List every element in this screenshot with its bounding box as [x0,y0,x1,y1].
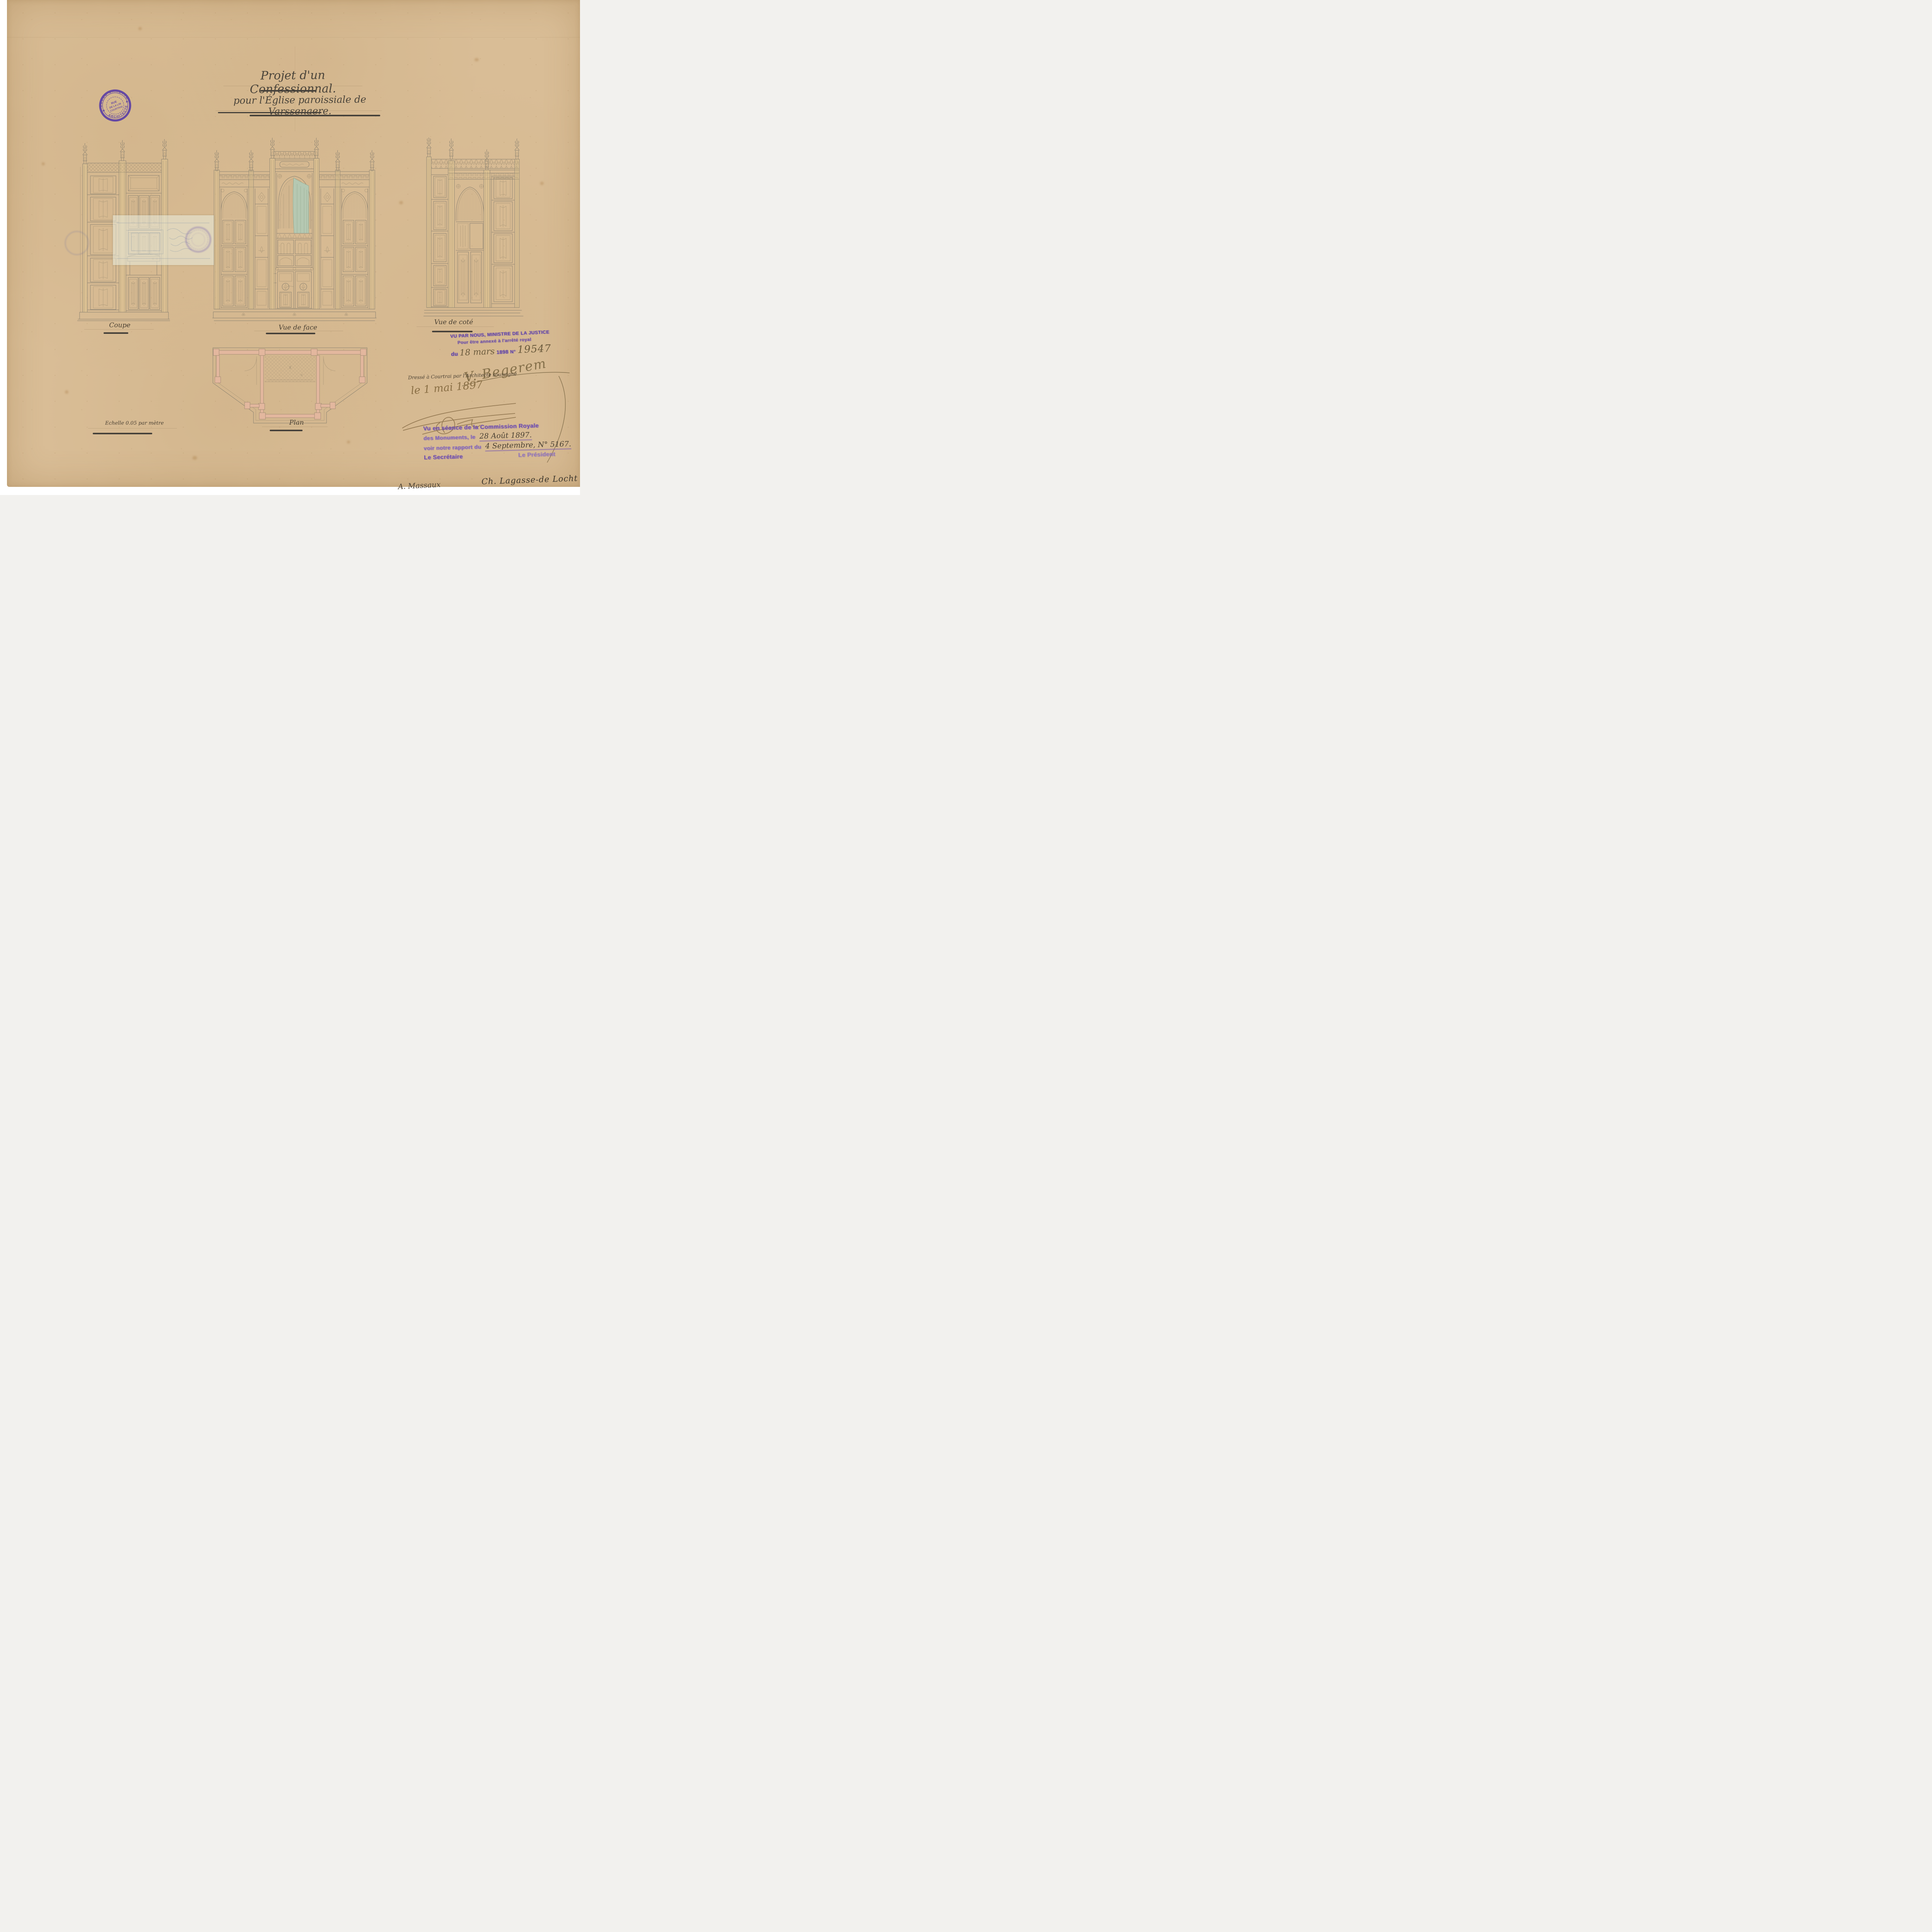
fox-spot [540,182,544,185]
scanned-drawing-page: JULES CARETTE ARCHITECTE RUE DE LA LOI C… [0,0,580,495]
title-line2: pour l'Église paroissiale de Varssenaere… [211,94,389,117]
justice-du-label: du [451,350,458,357]
title-underline-lower [250,115,380,116]
commission-stamp: Vu en séance de la Commission Royale des… [423,422,571,461]
paper-sheet: JULES CARETTE ARCHITECTE RUE DE LA LOI C… [7,0,580,487]
commission-line2-handwritten: 28 Août 1897. [479,431,532,442]
fox-spot [347,440,350,444]
label-vue-de-cote: Vue de coté [423,318,485,326]
justice-stamp: VU PAR NOUS, MINISTRE DE LA JUSTICE Pour… [450,328,579,359]
blue-ghost-stamp-icon [65,231,89,255]
pencil-guide-line [84,329,154,330]
commission-line3-label: voir notre rapport du [423,444,481,451]
title-line1: Projet d'un Confessionnal. [223,68,364,96]
commission-line3: voir notre rapport du 4 Septembre, N° 51… [423,440,570,452]
fox-spot [399,201,403,204]
architect-ghost-stamp-icon [182,223,214,255]
pencil-guide-line [88,428,177,429]
scale-underline [93,433,152,434]
label-plan-underline [270,430,303,431]
secretary-signature: A. Massaux [398,480,441,491]
side-elevation-drawing [423,138,524,319]
plan-drawing [210,343,370,426]
label-coupe: Coupe [102,321,137,329]
fold-crease [7,37,580,37]
president-signature: Ch. Lagasse-de Locht [481,474,578,486]
fox-spot [138,27,142,30]
fox-spot [65,390,68,394]
president-label: Le Président [518,451,555,459]
pencil-guide-line [262,427,328,427]
scale-note: Echelle 0.05 par mètre [96,420,173,426]
fox-spot [474,58,479,61]
fox-spot [192,456,197,460]
label-vue-de-cote-underline [432,331,473,332]
front-elevation-drawing [212,136,377,325]
label-vue-de-face-underline [266,333,315,334]
commission-line3-handwritten: 4 Septembre, N° 5167. [485,440,571,452]
justice-number-handwritten: 19547 [517,343,551,356]
secretary-label: Le Secrétaire [424,453,463,461]
justice-year: 1898 [496,349,509,355]
label-coupe-underline [104,332,128,334]
tracing-paper-patch [113,215,214,265]
curtain-wash [293,178,309,233]
lattice-grille [470,223,483,249]
justice-date-handwritten: 18 mars [459,347,495,358]
fox-spot [42,162,45,165]
pencil-guide-line [417,327,494,327]
label-plan: Plan [278,419,315,427]
title-underline-upper [218,112,321,113]
label-vue-de-face: Vue de face [265,324,331,332]
commission-line2-label: des Monuments, le [423,434,476,441]
title-underline [260,90,316,92]
justice-number-label: N° [510,349,516,355]
architect-round-stamp-icon: JULES CARETTE ARCHITECTE RUE DE LA LOI C… [94,84,136,127]
